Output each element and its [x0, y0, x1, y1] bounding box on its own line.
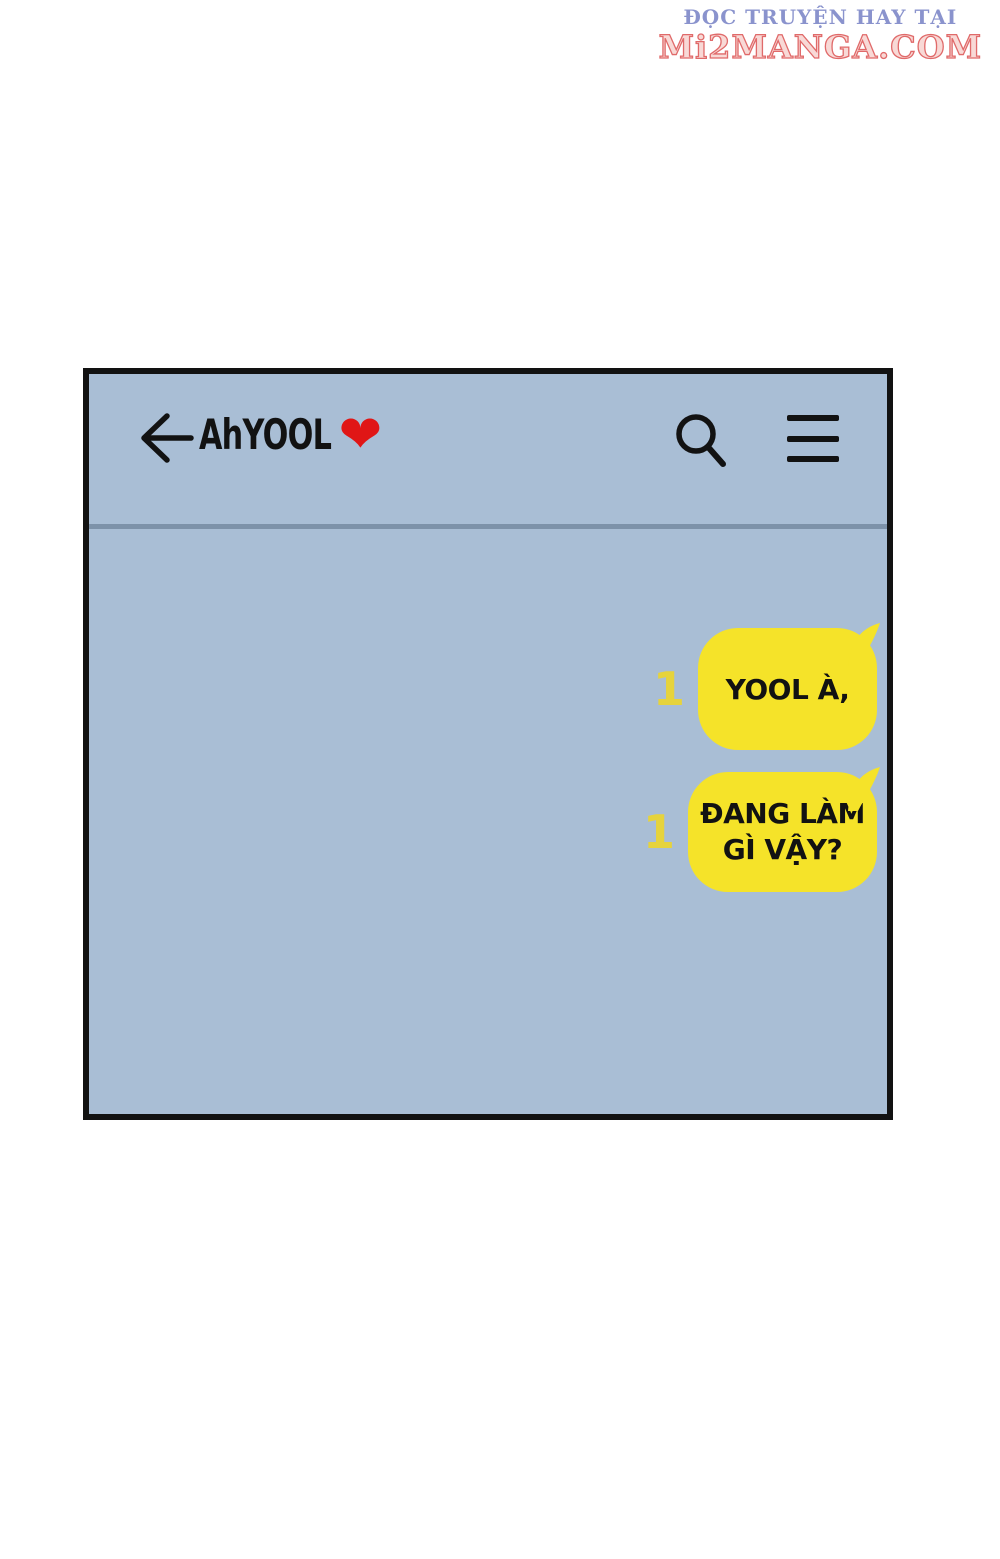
- menu-line: [787, 436, 839, 442]
- chat-title: AhYOOL ❤: [199, 402, 382, 466]
- watermark: ĐỌC TRUYỆN HAY TẠI Mi2MANGA.COM: [659, 6, 982, 65]
- unread-badge: 1: [653, 666, 685, 712]
- message-text: GÌ VẬY?: [723, 832, 843, 868]
- back-arrow-icon[interactable]: [137, 410, 195, 466]
- menu-line: [787, 415, 839, 421]
- message-text: ĐANG LÀM: [700, 796, 865, 832]
- chat-title-text: AhYOOL: [199, 410, 331, 459]
- watermark-tagline: ĐỌC TRUYỆN HAY TẠI: [659, 6, 982, 28]
- menu-line: [787, 456, 839, 462]
- chat-window: AhYOOL ❤ 1 YOOL À,: [83, 368, 893, 1120]
- message-bubble[interactable]: YOOL À,: [698, 628, 877, 750]
- bubble-tail: [846, 621, 882, 667]
- message-bubble[interactable]: ĐANG LÀM GÌ VẬY?: [688, 772, 877, 892]
- header-divider: [89, 524, 887, 529]
- message-row: 1 ĐANG LÀM GÌ VẬY?: [643, 772, 877, 892]
- bubble-tail: [846, 765, 882, 811]
- menu-icon[interactable]: [787, 415, 839, 462]
- unread-badge: 1: [643, 809, 675, 855]
- heart-icon: ❤: [339, 409, 383, 461]
- comic-page: ĐỌC TRUYỆN HAY TẠI Mi2MANGA.COM AhYOOL ❤: [0, 0, 1000, 1559]
- watermark-site-name: Mi2MANGA.COM: [659, 30, 982, 65]
- search-icon[interactable]: [673, 412, 731, 472]
- chat-header: AhYOOL ❤: [89, 374, 887, 524]
- message-row: 1 YOOL À,: [653, 628, 877, 750]
- message-text: YOOL À,: [726, 673, 850, 706]
